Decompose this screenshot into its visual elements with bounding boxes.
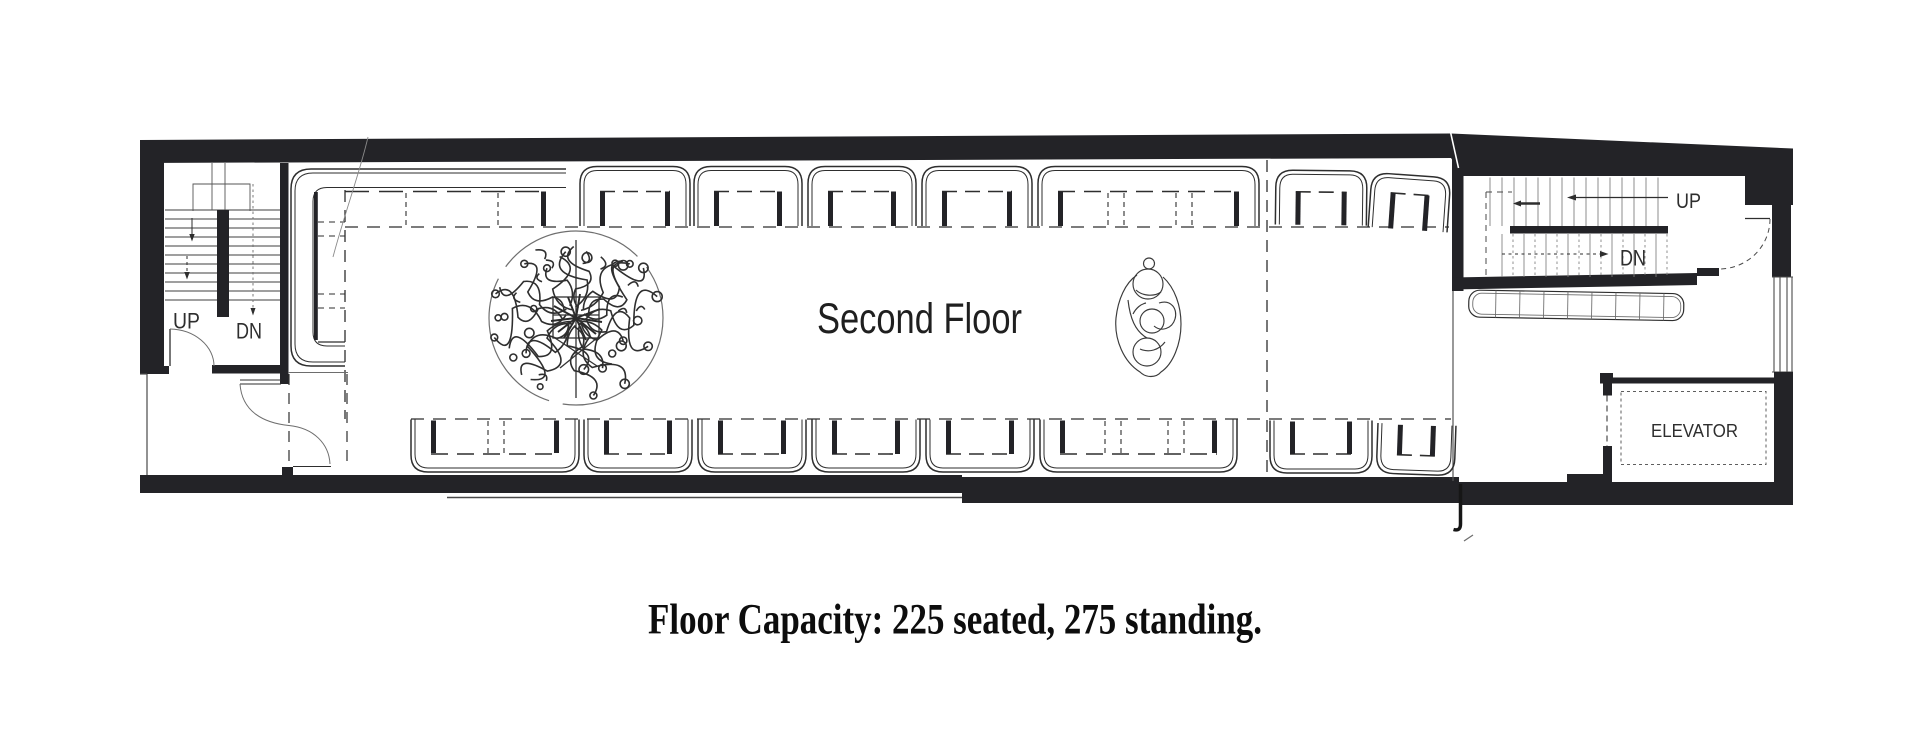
svg-text:UP: UP	[1676, 190, 1701, 213]
svg-text:Floor Capacity: 225 seated, 27: Floor Capacity: 225 seated, 275 standing…	[648, 597, 1262, 644]
svg-text:Second Floor: Second Floor	[817, 295, 1022, 343]
svg-text:DN: DN	[1620, 246, 1646, 271]
svg-text:ELEVATOR: ELEVATOR	[1651, 421, 1738, 441]
svg-text:DN: DN	[236, 319, 262, 344]
